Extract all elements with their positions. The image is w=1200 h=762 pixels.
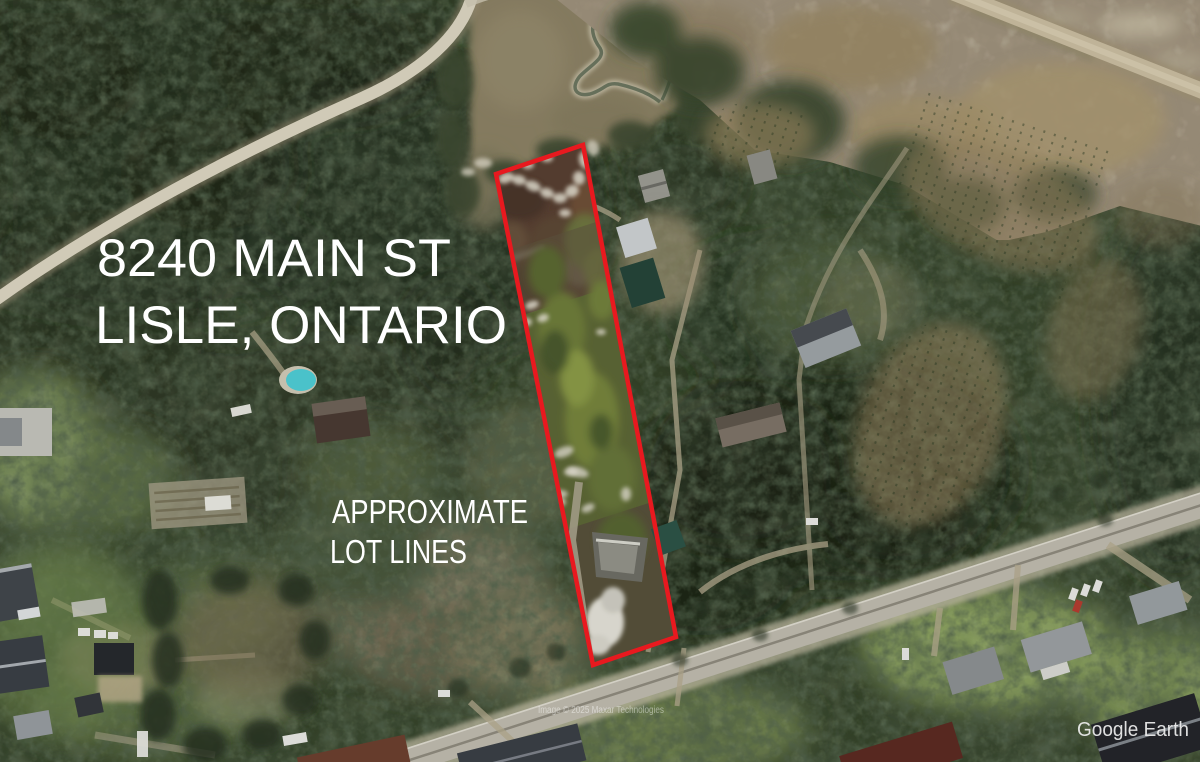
svg-text:8240 MAIN ST: 8240 MAIN ST bbox=[97, 229, 451, 288]
svg-text:Image © 2025 Maxar Technologie: Image © 2025 Maxar Technologies bbox=[538, 705, 664, 716]
svg-text:LOT LINES: LOT LINES bbox=[330, 534, 467, 571]
svg-text:APPROXIMATE: APPROXIMATE bbox=[332, 494, 528, 531]
svg-text:LISLE, ONTARIO: LISLE, ONTARIO bbox=[95, 296, 507, 355]
svg-text:Google Earth: Google Earth bbox=[1077, 718, 1189, 741]
